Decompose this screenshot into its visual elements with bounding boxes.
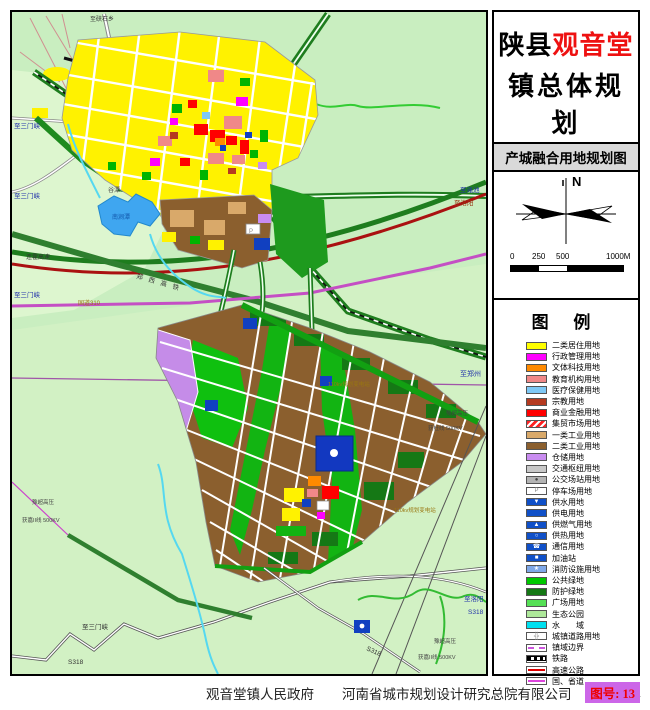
legend-item: 二类居住用地 [526, 340, 638, 351]
legend-swatch [526, 509, 547, 517]
legend-item: 公共绿地 [526, 575, 638, 586]
map-label: 南涧潭 [112, 213, 130, 221]
map-label: 豫超高压 [434, 637, 457, 645]
legend-item: 供电用地 [526, 508, 638, 519]
map-label: 国道310 [78, 299, 101, 307]
legend-swatch-icon: ★ [534, 566, 539, 572]
legend-label: 通信用地 [552, 541, 584, 552]
legend-label: 商业金融用地 [552, 407, 600, 418]
legend-swatch [526, 353, 547, 361]
legend-label: 文体科技用地 [552, 362, 600, 373]
legend-swatch [526, 588, 547, 596]
legend-item: ★消防设施用地 [526, 564, 638, 575]
legend-label: 停车场用地 [552, 486, 592, 497]
legend-label: 供热用地 [552, 530, 584, 541]
scale-tick-0: 0 [510, 252, 514, 261]
legend-item: ■加油站 [526, 553, 638, 564]
legend-swatch-icon: ○ [535, 533, 539, 539]
legend-label: 一类工业用地 [552, 430, 600, 441]
boundary-line-icon [528, 647, 545, 649]
legend-item: 教育机构用地 [526, 374, 638, 385]
legend-label: 水 域 [552, 620, 584, 631]
legend-label: 公共绿地 [552, 575, 584, 586]
legend-label: 广场用地 [552, 597, 584, 608]
legend-label: 铁路 [552, 653, 568, 664]
legend-item: 宗教用地 [526, 396, 638, 407]
title-block: 陕县观音堂 镇总体规划 (2013-2030) 产城融合用地规划图 [492, 10, 640, 172]
legend-item: 一类工业用地 [526, 430, 638, 441]
facility-icon-south [360, 624, 365, 629]
north-label: N [572, 174, 581, 189]
legend-label: 供燃气用地 [552, 519, 592, 530]
legend-item: 防护绿地 [526, 586, 638, 597]
map-label: 110kv规划变电站 [394, 506, 436, 514]
legend-label: 加油站 [552, 553, 576, 564]
legend-item: 生态公园 [526, 609, 638, 620]
legend-label: 教育机构用地 [552, 374, 600, 385]
legend-swatch [526, 398, 547, 406]
legend-label: 供电用地 [552, 508, 584, 519]
legend-swatch [526, 386, 547, 394]
map-label: S318 [68, 659, 84, 666]
planning-map: 至硖石乡至渑池至三门峡至三门峡连霍高速至三门峡国道310谷潭南涧潭郑西高铁至洛阳… [10, 10, 488, 676]
footer-government: 观音堂镇人民政府 [206, 683, 314, 703]
legend-block: 图 例 二类居住用地行政管理用地文体科技用地教育机构用地医疗保健用地宗教用地商业… [492, 298, 640, 676]
legend-item: 集贸市场用地 [526, 418, 638, 429]
legend-label: 仓储用地 [552, 452, 584, 463]
map-label: 至三门峡 [14, 191, 41, 200]
legend-swatch [526, 375, 547, 383]
legend-swatch [526, 599, 547, 607]
map-label: P [249, 229, 253, 235]
compass-block: N 0 250 500 1000M [492, 170, 640, 300]
map-label: 至三门峡 [14, 121, 41, 130]
map-label: S318 [468, 609, 484, 616]
legend-swatch-icon: P [534, 488, 538, 494]
legend-swatch-icon: ▲ [534, 522, 540, 528]
legend-swatch: P [526, 487, 547, 495]
map-label: 豫超高压 [32, 498, 55, 506]
legend-label: 消防设施用地 [552, 564, 600, 575]
map-label: 获嘉II线 500KV [418, 653, 456, 661]
legend-label: 供水用地 [552, 497, 584, 508]
legend-label: 公交场站用地 [552, 474, 600, 485]
footer-company: 河南省城市规划设计研究总院有限公司 [342, 683, 572, 703]
legend-swatch [526, 577, 547, 585]
legend-item: 交通枢纽用地 [526, 463, 638, 474]
legend-item: 镇域边界 [526, 642, 638, 653]
legend-item: ☎通信用地 [526, 541, 638, 552]
legend-swatch [526, 666, 547, 674]
map-label: 至渑池 [460, 185, 480, 194]
legend-item: 仓储用地 [526, 452, 638, 463]
sheet-subtitle: 产城融合用地规划图 [494, 142, 638, 170]
legend-swatch: ▼ [526, 498, 547, 506]
map-label: 至郑州 [460, 370, 481, 378]
title-prefix: 陕县 [498, 30, 552, 60]
plan-title-line2: 镇总体规划 [494, 66, 638, 140]
legend-swatch: ■ [526, 554, 547, 562]
map-label: 连霍高速 [26, 253, 50, 261]
map-label: 至洛阳 [464, 594, 484, 603]
legend-item: 二类工业用地 [526, 441, 638, 452]
sheet-number-badge: 图号: 13 [585, 682, 640, 703]
footer: 观音堂镇人民政府 河南省城市规划设计研究总院有限公司 2014.01 图号: 1… [10, 680, 642, 706]
railway-line-icon [527, 656, 546, 661]
legend-swatch [526, 644, 547, 652]
legend-label: 二类工业用地 [552, 441, 600, 452]
legend-item: ▲供燃气用地 [526, 519, 638, 530]
road-glyph-icon: ╬ [534, 633, 539, 640]
map-label: 至三门峡 [14, 290, 41, 299]
legend-swatch: ☎ [526, 543, 547, 551]
scale-tick-1000: 1000M [606, 252, 630, 261]
legend-swatch [526, 364, 547, 372]
legend-label: 集贸市场用地 [552, 418, 600, 429]
legend-swatch [526, 409, 547, 417]
map-label: 至洛阳 [454, 198, 474, 207]
legend-label: 宗教用地 [552, 396, 584, 407]
scale-bar: 0 250 500 1000M [494, 250, 638, 290]
legend-swatch-icon: ■ [535, 555, 539, 561]
legend-list: 二类居住用地行政管理用地文体科技用地教育机构用地医疗保健用地宗教用地商业金融用地… [494, 340, 638, 687]
plan-sheet: 至硖石乡至渑池至三门峡至三门峡连霍高速至三门峡国道310谷潭南涧潭郑西高铁至洛阳… [0, 0, 650, 710]
legend-swatch: ╬ [526, 632, 547, 640]
legend-label: 医疗保健用地 [552, 385, 600, 396]
map-label: 获杜线 500KV [428, 424, 463, 432]
legend-swatch: ★ [526, 565, 547, 573]
legend-swatch [526, 621, 547, 629]
legend-swatch [526, 420, 547, 428]
legend-swatch [526, 342, 547, 350]
map-label: 获嘉II线 500KV [22, 516, 60, 524]
legend-swatch: ▲ [526, 521, 547, 529]
scale-bar-graphic [510, 265, 624, 272]
legend-swatch [526, 655, 547, 663]
map-label: 至硖石乡 [90, 15, 114, 23]
legend-item: P停车场用地 [526, 485, 638, 496]
legend-item: 铁路 [526, 653, 638, 664]
legend-swatch-icon: ▼ [534, 499, 540, 505]
scale-tick-500: 500 [556, 252, 569, 261]
legend-swatch [526, 431, 547, 439]
legend-item: ●公交场站用地 [526, 474, 638, 485]
planning-map-canvas: 至硖石乡至渑池至三门峡至三门峡连霍高速至三门峡国道310谷潭南涧潭郑西高铁至洛阳… [12, 12, 486, 674]
legend-item: 水 域 [526, 620, 638, 631]
plan-title-line1: 陕县观音堂 [494, 25, 638, 62]
legend-swatch [526, 442, 547, 450]
legend-swatch-icon: ☎ [533, 544, 540, 550]
legend-swatch [526, 465, 547, 473]
legend-item: 高速公路 [526, 664, 638, 675]
map-label: 至三门峡 [82, 622, 109, 631]
legend-swatch-icon: ● [535, 477, 539, 483]
legend-item: 文体科技用地 [526, 362, 638, 373]
legend-label: 镇域边界 [552, 642, 584, 653]
legend-item: 商业金融用地 [526, 407, 638, 418]
legend-label: 行政管理用地 [552, 351, 600, 362]
legend-item: 广场用地 [526, 597, 638, 608]
legend-swatch [526, 453, 547, 461]
scale-tick-250: 250 [532, 252, 545, 261]
legend-heading: 图 例 [494, 308, 638, 333]
map-label: 110kv规划变电站 [328, 380, 370, 388]
legend-item: ╬城镇道路用地 [526, 631, 638, 642]
legend-label: 防护绿地 [552, 586, 584, 597]
legend-swatch: ● [526, 476, 547, 484]
legend-item: 医疗保健用地 [526, 385, 638, 396]
title-highlight: 观音堂 [553, 30, 634, 60]
legend-label: 高速公路 [552, 665, 584, 676]
legend-item: 行政管理用地 [526, 351, 638, 362]
north-arrow: N [494, 172, 638, 250]
road-line-icon [528, 669, 545, 671]
legend-label: 二类居住用地 [552, 340, 600, 351]
legend-label: 生态公园 [552, 609, 584, 620]
legend-label: 城镇道路用地 [552, 631, 600, 642]
legend-label: 交通枢纽用地 [552, 463, 600, 474]
legend-swatch [526, 610, 547, 618]
map-label: 豫超高压 [446, 409, 469, 417]
compass-rose [494, 172, 638, 250]
side-panel: 陕县观音堂 镇总体规划 (2013-2030) 产城融合用地规划图 N 0 [492, 10, 640, 676]
legend-item: ○供热用地 [526, 530, 638, 541]
legend-item: ▼供水用地 [526, 497, 638, 508]
map-label: 谷潭 [108, 186, 120, 194]
legend-swatch: ○ [526, 532, 547, 540]
